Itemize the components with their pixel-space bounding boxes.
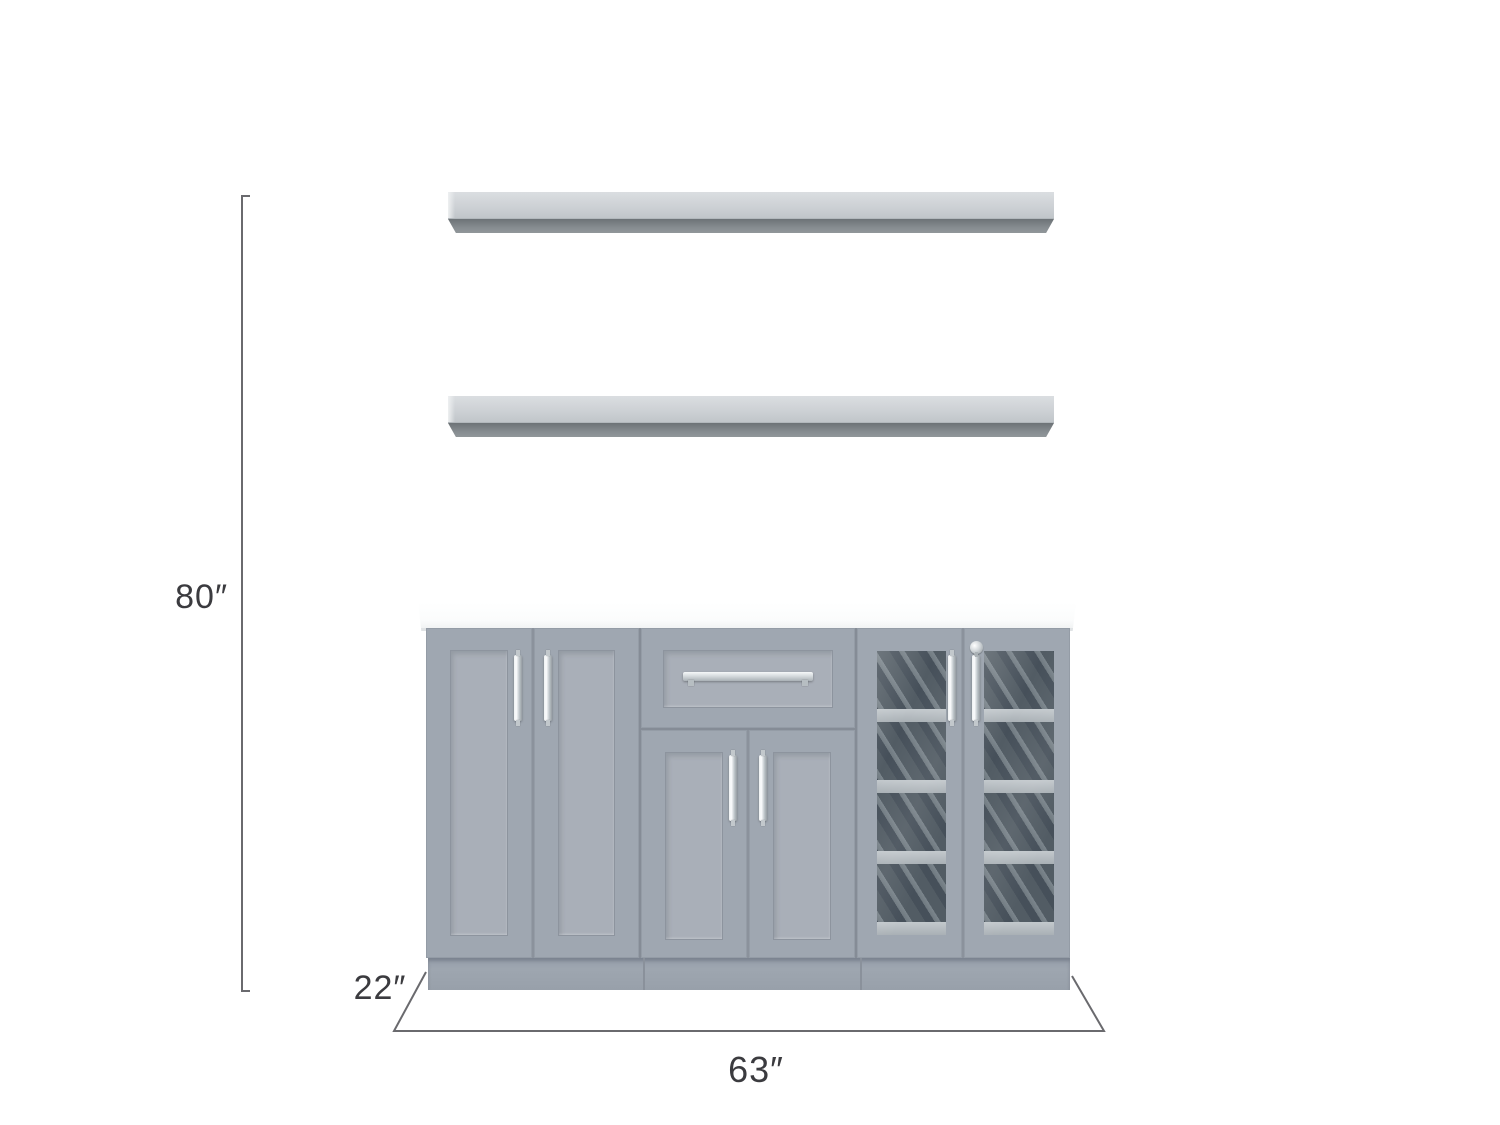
shelf-underside — [448, 423, 1054, 437]
lock-icon — [970, 641, 983, 654]
rack-shelf-edge — [877, 851, 947, 864]
drawer-handle — [683, 672, 813, 681]
rack-shelf-edge — [984, 851, 1054, 864]
width-dimension-label: 63″ — [694, 1049, 818, 1091]
section-glass-display-cabinet — [855, 628, 1070, 958]
glass-panel — [877, 651, 947, 935]
door-handle — [729, 755, 737, 821]
door-shaker-panel — [558, 650, 616, 936]
door-handle — [948, 655, 956, 721]
door-shaker-panel — [773, 752, 831, 940]
wine-rack-row — [877, 864, 947, 935]
wine-rack-row — [877, 722, 947, 793]
shelf-underside — [448, 219, 1054, 233]
door-handle — [759, 755, 767, 821]
glass-door-left — [857, 628, 963, 958]
glass-door-right — [962, 628, 1070, 958]
section-two-door-cabinet — [426, 628, 639, 958]
wine-rack-row — [877, 793, 947, 864]
floating-shelf-bottom — [448, 396, 1054, 437]
rack-shelf-edge — [877, 922, 947, 935]
cabinet-door-right — [532, 628, 640, 958]
glass-panel — [984, 651, 1054, 935]
section-drawer-cabinet — [639, 628, 854, 958]
countertop — [418, 602, 1076, 631]
door-shaker-panel — [665, 752, 723, 940]
cabinet-door-left — [426, 628, 532, 958]
depth-dimension-label: 22″ — [336, 969, 424, 1008]
wine-rack-row — [877, 651, 947, 722]
rack-shelf-edge — [877, 709, 947, 722]
shelf-front-face — [448, 396, 1054, 423]
door-handle — [544, 655, 552, 721]
drawer — [641, 628, 854, 728]
base-seam — [643, 958, 645, 990]
shelf-front-face — [448, 192, 1054, 219]
product-dimension-diagram: 80″ 22″ 63″ — [0, 0, 1500, 1125]
drawer-cabinet-doors — [641, 728, 854, 958]
height-dimension-line — [242, 196, 250, 991]
cabinet-door-left — [641, 730, 747, 958]
rack-shelf-edge — [984, 922, 1054, 935]
floating-shelf-top — [448, 192, 1054, 233]
door-handle — [972, 655, 980, 721]
toe-kick-base — [428, 958, 1070, 990]
cabinet-door-right — [747, 730, 855, 958]
door-shaker-panel — [450, 650, 508, 936]
wine-rack-row — [984, 722, 1054, 793]
base-seam — [860, 958, 862, 990]
rack-shelf-edge — [984, 780, 1054, 793]
cabinet-body — [426, 628, 1070, 958]
height-dimension-label: 80″ — [128, 578, 228, 617]
rack-shelf-edge — [984, 709, 1054, 722]
wine-rack-row — [984, 793, 1054, 864]
wine-rack-row — [984, 651, 1054, 722]
rack-shelf-edge — [877, 780, 947, 793]
door-handle — [514, 655, 522, 721]
wine-rack-row — [984, 864, 1054, 935]
